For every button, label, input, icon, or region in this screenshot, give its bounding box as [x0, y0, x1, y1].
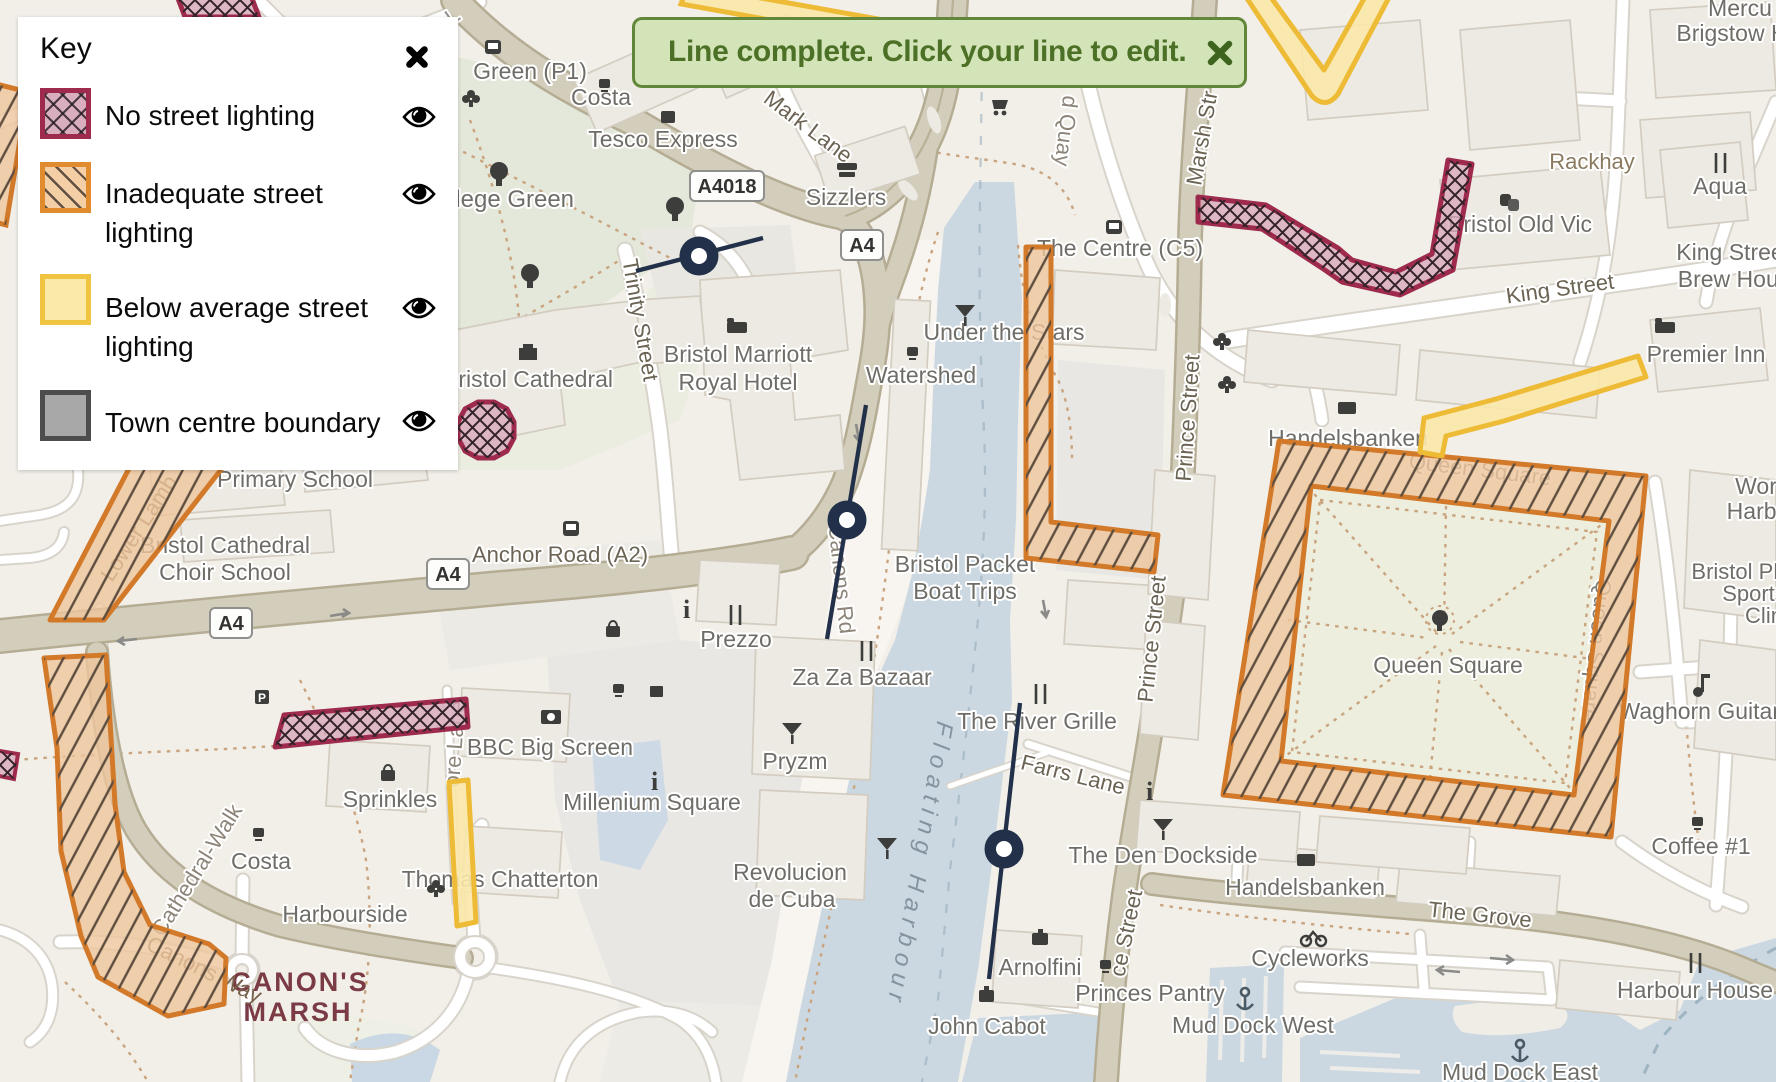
svg-text:Clin: Clin [1745, 603, 1776, 628]
svg-text:Mercu: Mercu [1708, 0, 1772, 21]
svg-text:Brigstow H: Brigstow H [1676, 20, 1776, 46]
svg-text:Handelsbanken: Handelsbanken [1225, 874, 1385, 900]
svg-text:John Cabot: John Cabot [928, 1013, 1046, 1039]
svg-text:Wor: Wor [1735, 473, 1776, 499]
svg-text:i: i [651, 767, 658, 796]
svg-text:Premier Inn: Premier Inn [1647, 341, 1766, 367]
svg-text:King Stree: King Stree [1676, 239, 1776, 265]
svg-text:A4018: A4018 [698, 176, 757, 198]
svg-text:Royal Hotel: Royal Hotel [679, 369, 798, 395]
svg-text:A4: A4 [435, 564, 461, 586]
svg-text:Bristol Cathedral: Bristol Cathedral [443, 366, 613, 392]
svg-text:Princes Pantry: Princes Pantry [1075, 980, 1225, 1006]
svg-text:Revolucion: Revolucion [733, 859, 847, 885]
svg-text:Bristol Old Vic: Bristol Old Vic [1448, 211, 1592, 237]
svg-text:Coffee #1: Coffee #1 [1651, 833, 1750, 859]
svg-text:Harbourside: Harbourside [282, 901, 407, 927]
svg-text:Aqua: Aqua [1693, 173, 1747, 199]
svg-text:i: i [683, 595, 690, 624]
svg-text:The Centre (C5): The Centre (C5) [1037, 235, 1203, 261]
svg-text:i: i [1146, 777, 1153, 806]
svg-text:Prezzo: Prezzo [700, 626, 772, 652]
svg-text:Mud Dock West: Mud Dock West [1172, 1012, 1335, 1038]
svg-text:A4: A4 [849, 235, 875, 257]
svg-text:Arnolfini: Arnolfini [998, 954, 1081, 980]
svg-text:Anchor Road (A2): Anchor Road (A2) [472, 542, 648, 567]
svg-text:Sizzlers: Sizzlers [806, 184, 887, 210]
svg-text:llege Green: llege Green [450, 186, 574, 213]
svg-text:Sprinkles: Sprinkles [343, 786, 438, 812]
svg-text:Watershed: Watershed [866, 362, 976, 388]
svg-text:Za Za Bazaar: Za Za Bazaar [792, 664, 932, 690]
svg-text:Bristol Marriott: Bristol Marriott [664, 341, 813, 367]
svg-text:Tesco Express: Tesco Express [588, 126, 738, 152]
svg-text:Choir School: Choir School [159, 559, 291, 585]
svg-text:P: P [258, 691, 266, 705]
svg-text:Rackhay: Rackhay [1549, 149, 1635, 174]
svg-text:Queen Square: Queen Square [1373, 652, 1523, 678]
svg-text:The Den Dockside: The Den Dockside [1068, 842, 1257, 868]
svg-text:Bristol Packet: Bristol Packet [895, 551, 1036, 577]
svg-text:Waghorn Guitars: Waghorn Guitars [1619, 698, 1776, 724]
svg-text:Harbour House: Harbour House [1617, 977, 1773, 1003]
svg-text:Brew Hous: Brew Hous [1678, 266, 1776, 292]
svg-text:MARSH: MARSH [244, 997, 353, 1027]
svg-text:Green (P1): Green (P1) [473, 58, 587, 84]
svg-text:The River Grille: The River Grille [957, 708, 1117, 734]
svg-text:Costa: Costa [231, 848, 291, 874]
svg-text:Pryzm: Pryzm [762, 748, 827, 774]
svg-text:A4: A4 [218, 613, 244, 635]
svg-text:Cycleworks: Cycleworks [1251, 945, 1369, 971]
svg-text:Harbo: Harbo [1727, 498, 1776, 524]
svg-text:de Cuba: de Cuba [749, 886, 836, 912]
svg-text:Mud Dock East: Mud Dock East [1442, 1059, 1599, 1082]
svg-text:BBC Big Screen: BBC Big Screen [467, 734, 633, 760]
svg-text:Under the Stars: Under the Stars [923, 319, 1084, 345]
svg-text:Boat Trips: Boat Trips [913, 578, 1017, 604]
